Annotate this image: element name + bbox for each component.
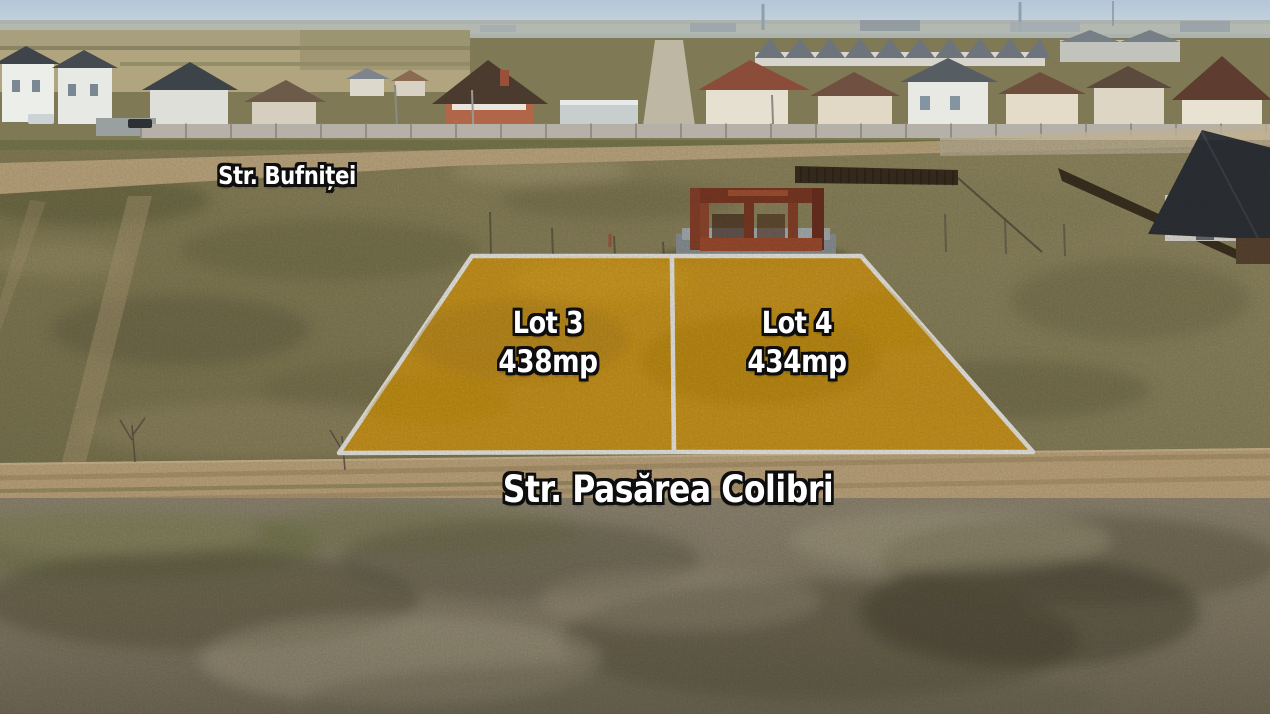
street-label-bufnitei: Str. Bufniței [177, 160, 398, 192]
parked-car-icon [128, 119, 152, 128]
aerial-photo: Str. Bufniței Lot 3 438mp Lot 4 434mp St… [0, 0, 1270, 714]
lot3-area: 438mp [463, 343, 633, 382]
lot4-name: Lot 4 [712, 305, 882, 343]
lot3-label: Lot 3 438mp [463, 305, 633, 382]
lot3-name: Lot 3 [463, 305, 633, 343]
photo-artwork [0, 0, 1270, 714]
lot4-area: 434mp [712, 343, 882, 382]
texture-grain [0, 140, 1270, 714]
street-label-pasarea-colibri: Str. Pasărea Colibri [473, 467, 864, 514]
parked-car-icon [28, 114, 54, 124]
lot4-label: Lot 4 434mp [712, 305, 882, 382]
